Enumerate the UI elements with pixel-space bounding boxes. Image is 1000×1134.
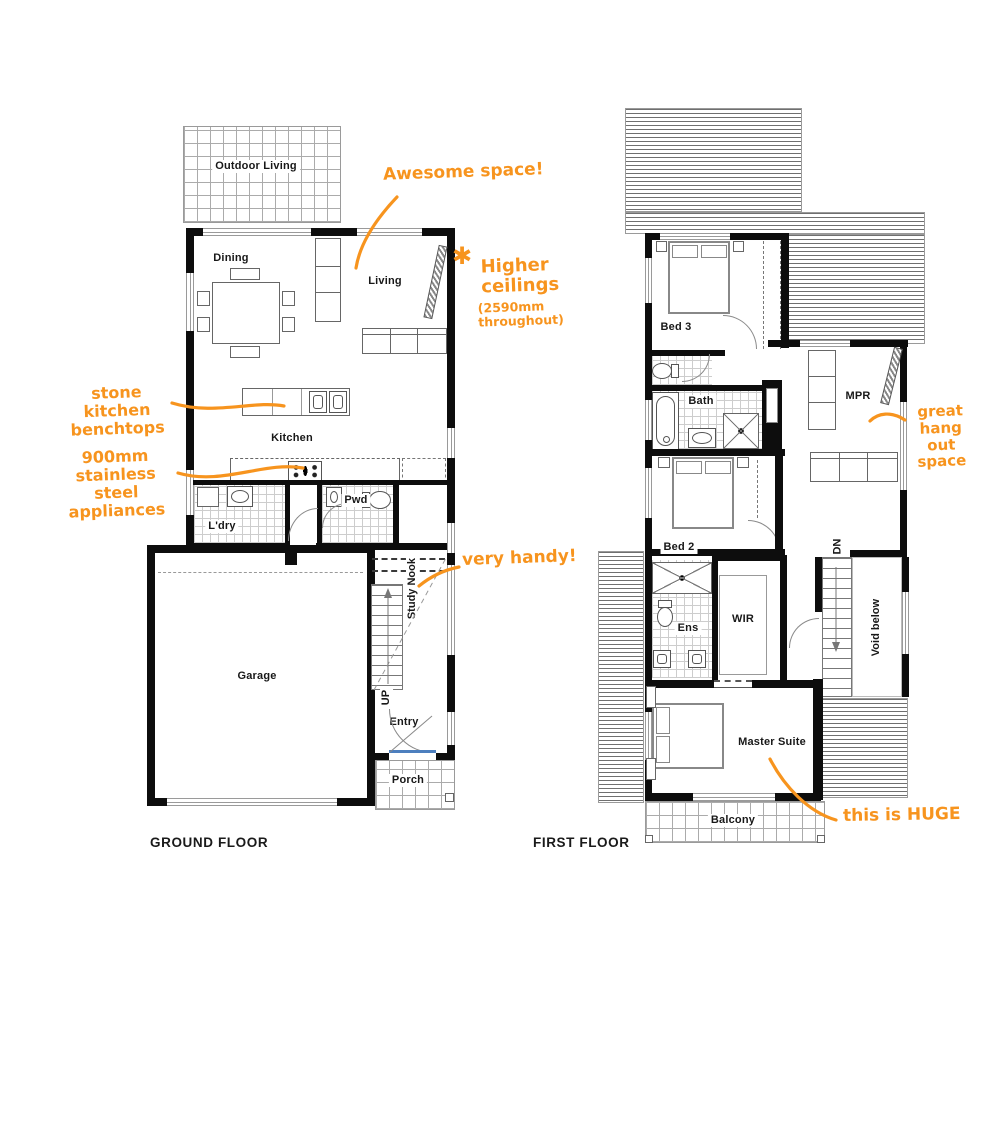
bath-vanity [688, 428, 716, 448]
robe [763, 241, 781, 349]
wall [775, 452, 783, 552]
wall [375, 753, 389, 760]
mpr-sofa [810, 452, 898, 482]
dining-chair [282, 291, 295, 306]
ensuite-vanity [688, 650, 706, 668]
wall [712, 555, 786, 561]
room-label-powder: Pwd [341, 494, 370, 507]
bedside-table [656, 241, 667, 252]
window [645, 468, 652, 518]
wall [285, 545, 297, 565]
toilet [655, 600, 673, 626]
bedside-table [733, 241, 744, 252]
roof-hatch [598, 551, 644, 803]
asterisk-icon: ✱ [452, 243, 472, 270]
ensuite-vanity [653, 650, 671, 668]
window [447, 523, 455, 553]
dining-chair [197, 317, 210, 332]
window [357, 228, 422, 236]
garage-door [167, 798, 337, 806]
door-arc [723, 315, 757, 349]
room-label-bed2: Bed 2 [661, 541, 698, 554]
room-label-study-nook: Study Nook [406, 556, 419, 621]
staircase-down [822, 557, 852, 697]
annotation-higher-ceilings: Higher ceilings [480, 254, 569, 297]
room-label-master: Master Suite [735, 736, 809, 749]
room-label-wir: WIR [729, 613, 757, 626]
robe-opening [714, 680, 752, 688]
room-label-ensuite: Ens [675, 622, 702, 635]
void-below-label: Void below [870, 597, 883, 658]
wall [447, 228, 455, 760]
linen [766, 388, 778, 423]
bedside-table [658, 457, 670, 468]
window [186, 273, 194, 331]
ground-floor-title: GROUND FLOOR [150, 835, 268, 850]
tv-panel [423, 245, 447, 319]
dining-chair [282, 317, 295, 332]
window [645, 712, 652, 760]
room-label-bath: Bath [685, 395, 716, 408]
first-floor-plan: Bed 3 Bath MPR Bed 2 [500, 0, 1000, 1134]
garage-door-dashed-line [158, 572, 363, 573]
room-label-porch: Porch [389, 774, 427, 787]
staircase-up [371, 584, 403, 690]
wall [780, 555, 787, 688]
room-label-dining: Dining [210, 252, 251, 265]
wardrobe-unit [646, 686, 656, 708]
robe [757, 460, 777, 518]
window [645, 258, 652, 303]
stairs-down-label: DN [831, 537, 844, 557]
porch-post [445, 793, 454, 802]
annotation-very-handy: very handy! [462, 547, 577, 570]
pillow [701, 245, 727, 258]
washing-machine [197, 487, 219, 507]
outdoor-living-deck [183, 126, 341, 223]
room-label-garage: Garage [234, 670, 279, 683]
annotation-hang-out-space: great hang out space [904, 402, 978, 472]
roof-hatch [783, 234, 925, 344]
dining-chair [230, 346, 260, 358]
annotation-higher-ceilings-detail: (2590mm throughout) [478, 298, 571, 329]
wall [712, 555, 718, 688]
window [447, 712, 455, 745]
wall [436, 753, 455, 760]
roof-hatch [625, 108, 802, 212]
window [660, 233, 730, 240]
kitchen-sink [329, 391, 347, 413]
wardrobe-unit [646, 758, 656, 780]
wall [813, 679, 823, 800]
wall [850, 550, 907, 557]
room-label-mpr: MPR [842, 390, 873, 403]
balcony-post [817, 835, 825, 843]
wall [781, 233, 789, 348]
entry-door-arc [389, 709, 433, 753]
window [186, 470, 194, 515]
bedside-table [737, 457, 749, 468]
living-shelf-unit [315, 238, 341, 322]
stairs-up-label: UP [380, 688, 393, 707]
pillow [672, 245, 698, 258]
mpr-shelf-unit [808, 350, 836, 430]
shower [723, 413, 759, 449]
window [645, 400, 652, 440]
room-label-living: Living [365, 275, 405, 288]
balcony-post [645, 835, 653, 843]
first-floor-title: FIRST FLOOR [533, 835, 630, 850]
window [203, 228, 311, 236]
window [800, 340, 850, 347]
dining-chair [230, 268, 260, 280]
pillow [676, 461, 702, 474]
wall [645, 449, 785, 456]
wall [147, 545, 375, 553]
annotation-huge: this is HUGE [843, 805, 961, 826]
pillow [705, 461, 731, 474]
shower [652, 562, 712, 594]
sliding-door [693, 793, 775, 801]
pillow [656, 707, 670, 734]
entry-threshold [389, 750, 436, 753]
room-label-kitchen: Kitchen [268, 432, 316, 445]
annotation-appliances: 900mm stainless steel appliances [51, 446, 181, 522]
floor-plan-page: Outdoor Living Dining Living Kitche [0, 0, 1000, 1134]
dining-table [212, 282, 280, 344]
door-arc [288, 508, 318, 541]
wall [815, 557, 822, 612]
bathtub [652, 392, 679, 450]
window [447, 565, 455, 655]
roof-hatch [822, 698, 908, 798]
wall [147, 545, 155, 806]
wall [393, 480, 399, 546]
annotation-stone-benchtops: stone kitchen benchtops [57, 382, 177, 440]
roof-hatch [625, 212, 925, 234]
kitchen-sink [309, 391, 327, 413]
door-arc [789, 618, 819, 648]
window [447, 428, 455, 458]
cooktop [288, 461, 322, 481]
laundry-trough [227, 486, 253, 507]
room-label-bed3: Bed 3 [658, 321, 695, 334]
room-label-balcony: Balcony [708, 814, 758, 827]
dining-chair [197, 291, 210, 306]
room-label-laundry: L'dry [205, 520, 238, 533]
window [902, 592, 909, 654]
living-sofa [362, 328, 447, 354]
pillow [656, 736, 670, 763]
toilet [653, 361, 679, 379]
room-label-outdoor-living: Outdoor Living [212, 160, 300, 173]
